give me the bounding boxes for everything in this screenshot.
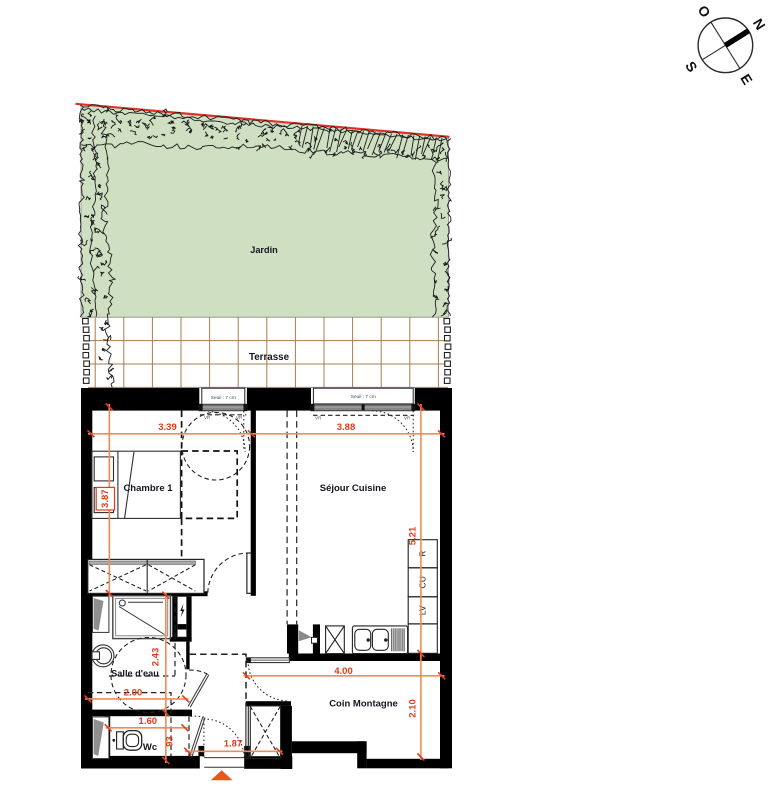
svg-text:1.60: 1.60 (139, 716, 158, 727)
svg-text:1.87: 1.87 (224, 739, 243, 750)
svg-text:CU: CU (418, 576, 428, 588)
svg-text:Terrasse: Terrasse (249, 352, 290, 363)
svg-text:Salle d'eau: Salle d'eau (111, 669, 159, 679)
svg-text:3.87: 3.87 (100, 489, 111, 508)
svg-text:3.39: 3.39 (158, 422, 177, 433)
svg-text:4.00: 4.00 (334, 666, 353, 677)
svg-text:2.43: 2.43 (151, 648, 162, 667)
svg-text:Séjour Cuisine: Séjour Cuisine (320, 483, 387, 494)
svg-text:Coin Montagne: Coin Montagne (329, 699, 398, 710)
svg-text:Seuil : 7 cm: Seuil : 7 cm (351, 394, 376, 400)
svg-text:R: R (418, 551, 428, 557)
svg-text:VR: VR (204, 415, 211, 420)
svg-text:2.10: 2.10 (408, 699, 419, 718)
svg-text:Chambre 1: Chambre 1 (123, 483, 173, 494)
svg-text:2.00: 2.00 (124, 687, 143, 698)
svg-text:Wc: Wc (143, 742, 157, 753)
svg-text:VR: VR (315, 416, 322, 421)
svg-text:VR: VR (404, 416, 411, 421)
svg-text:93: 93 (164, 736, 175, 747)
svg-text:Seuil : 7 cm: Seuil : 7 cm (211, 395, 236, 401)
svg-text:LV: LV (418, 605, 428, 615)
svg-text:3.88: 3.88 (337, 422, 356, 433)
svg-text:5.21: 5.21 (408, 526, 419, 545)
svg-text:Jardin: Jardin (250, 245, 278, 255)
